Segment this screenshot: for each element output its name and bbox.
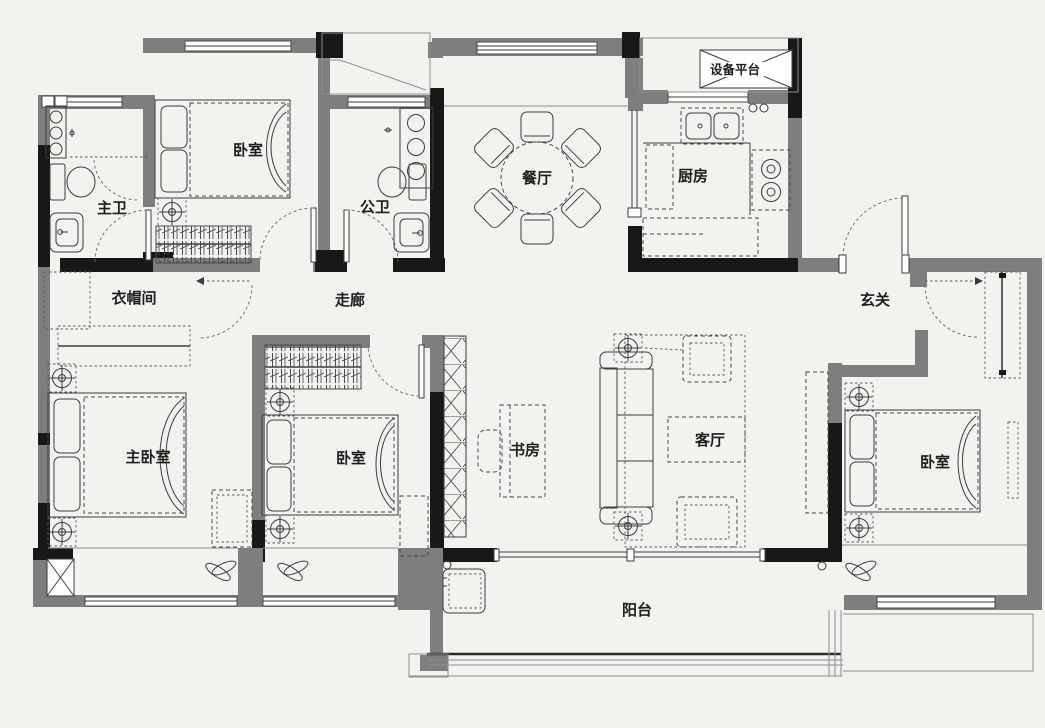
kitchen-sliding-door <box>628 110 641 217</box>
room-label-corridor: 走廊 <box>335 291 365 309</box>
master-bath-fixtures <box>46 106 95 252</box>
armchair <box>683 336 731 382</box>
window-master-bedroom <box>85 597 237 606</box>
door-bedroom-north <box>260 208 316 262</box>
tv-cabinet <box>806 372 828 513</box>
dining-chair <box>472 126 516 170</box>
room-label-master-bath: 主卫 <box>97 199 127 217</box>
room-labels: 主卫 卧室 公卫 餐厅 厨房 设备平台 衣帽间 走廊 玄关 主卧室 卧室 书房 … <box>97 62 950 619</box>
room-label-bedroom-east: 卧室 <box>920 453 950 471</box>
kitchen-fixtures <box>444 104 790 256</box>
door-bedroom-middle <box>368 343 424 398</box>
armchair <box>677 497 737 547</box>
room-label-foyer: 玄关 <box>860 291 890 309</box>
bedroom-north-wardrobe <box>156 226 251 263</box>
room-label-bedroom-north: 卧室 <box>233 141 263 159</box>
dining-chair <box>472 186 516 230</box>
balcony <box>47 545 1033 677</box>
dining-chair <box>559 126 603 170</box>
room-label-bedroom-middle: 卧室 <box>336 449 366 467</box>
shaft-column <box>47 559 74 596</box>
room-label-kitchen: 厨房 <box>678 167 708 185</box>
door-master-suite <box>196 277 252 338</box>
bedroom-middle-wardrobe <box>265 345 361 389</box>
balcony-sliding-door <box>494 549 765 561</box>
floor-plan-page: 主卫 卧室 公卫 餐厅 厨房 设备平台 衣帽间 走廊 玄关 主卧室 卧室 书房 … <box>0 0 1045 728</box>
room-label-dining: 餐厅 <box>522 169 552 187</box>
walls <box>33 32 1042 671</box>
bedroom-north-furniture <box>155 100 290 226</box>
cloakroom-wardrobe <box>44 272 190 366</box>
study-bookshelf <box>444 336 466 537</box>
dining-chair <box>521 214 553 244</box>
room-label-living: 客厅 <box>694 431 725 449</box>
dresser <box>212 490 252 547</box>
floor-plan-drawing: 主卫 卧室 公卫 餐厅 厨房 设备平台 衣帽间 走廊 玄关 主卧室 卧室 书房 … <box>0 0 1045 728</box>
foyer-shoe-cabinet <box>985 272 1020 378</box>
sofa <box>600 352 653 524</box>
dining-chair <box>559 186 603 230</box>
window-master-bath <box>42 96 122 107</box>
room-label-study: 书房 <box>510 441 540 459</box>
door-bedroom-east <box>925 277 983 337</box>
room-label-balcony: 阳台 <box>622 601 652 619</box>
window-bedroom-middle <box>263 597 395 606</box>
room-label-guest-bath: 公卫 <box>360 199 390 216</box>
door-guest-bath <box>344 210 398 262</box>
room-label-equipment-platform: 设备平台 <box>710 62 760 77</box>
dining-chair <box>521 112 553 142</box>
window-dining <box>477 42 597 54</box>
entrance-door <box>839 196 909 273</box>
guest-bath-fixtures <box>378 108 433 252</box>
room-label-cloakroom: 衣帽间 <box>111 289 156 307</box>
window-guest-bath <box>348 97 425 107</box>
windows <box>42 41 995 608</box>
window-bedroom-north <box>185 41 291 51</box>
bedroom-middle-furniture <box>262 388 428 556</box>
washing-machine <box>443 569 485 613</box>
window-bedroom-east <box>877 597 995 608</box>
room-label-master-bedroom: 主卧室 <box>125 448 170 466</box>
window-kitchen <box>668 92 748 102</box>
